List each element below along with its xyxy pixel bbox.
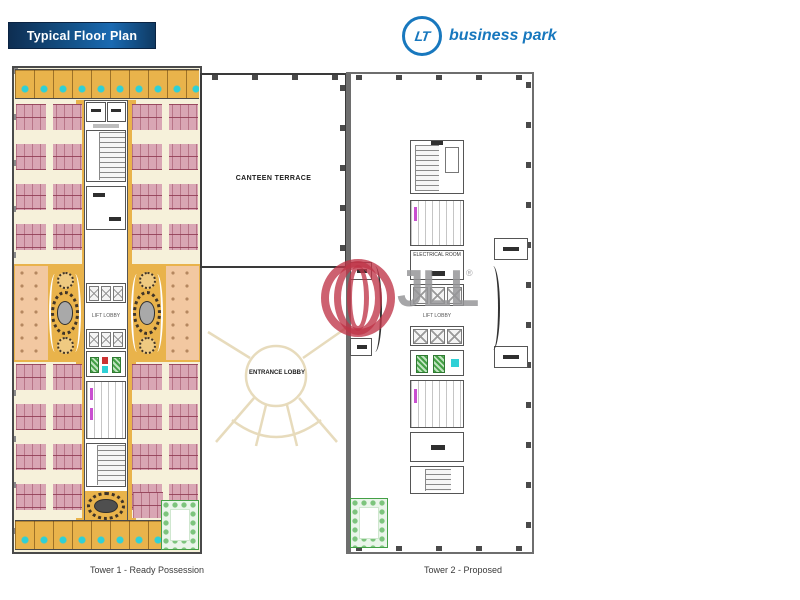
tower1-core: LIFT LOBBY: [84, 100, 128, 522]
registered-mark: ®: [466, 268, 473, 278]
stairs-icon: [415, 145, 439, 191]
lt-logo-icon: LT: [402, 16, 442, 56]
meeting-room: [86, 102, 106, 122]
brand-logo: LT business park: [402, 18, 557, 54]
canteen-label: CANTEEN TERRACE: [202, 175, 345, 182]
entrance-lobby-diagram: [204, 324, 356, 474]
pantry-counter-icon: [102, 366, 108, 373]
canteen-columns-right: [340, 85, 345, 260]
lift-shaft-icon: [430, 329, 445, 344]
equipment-icon: [503, 247, 519, 251]
washroom-fixture-icon: [90, 408, 93, 420]
tower1-caption: Tower 1 - Ready Possession: [90, 565, 204, 575]
table-icon: [91, 109, 101, 112]
equipment-icon: [93, 193, 105, 197]
title-banner: Typical Floor Plan: [8, 22, 156, 49]
stairs-icon: [99, 132, 125, 180]
tower2-entry-booth-right: [494, 346, 528, 368]
lift-shaft-icon: [113, 286, 123, 301]
tower1-workstations-lower-left: [16, 364, 82, 518]
terrace-inner: [359, 507, 379, 539]
tower2-staircase-upper: [410, 140, 464, 194]
pantry-seating-icon: [90, 357, 99, 373]
tower1-workstations-upper-right: [132, 104, 198, 264]
lens-arc-icon: [49, 274, 61, 352]
page-title: Typical Floor Plan: [27, 29, 137, 43]
lift-shaft-icon: [89, 332, 99, 347]
washroom-fixture-icon: [414, 207, 417, 221]
canteen-columns-top: [212, 75, 339, 80]
oval-table-icon: [94, 499, 118, 514]
tower1-boardroom-left: [48, 268, 82, 358]
tower2-service-room: [410, 432, 464, 462]
tower2-entry-booth-left: [350, 338, 372, 356]
terrace-inner: [170, 509, 190, 541]
pantry-counter-icon: [102, 357, 108, 364]
lift-shaft-icon: [101, 332, 111, 347]
stairs-icon: [425, 469, 451, 491]
globe-ring-icon: [347, 265, 369, 331]
tower2-garden-terrace: [350, 498, 388, 548]
tower2-washrooms-lower: [410, 380, 464, 428]
service-room: [445, 147, 459, 173]
equipment-icon: [431, 445, 445, 450]
lens-arc-icon: [131, 274, 143, 352]
tower1-pantry: [86, 351, 126, 377]
conference-table: [87, 492, 125, 520]
pantry-counter-icon: [451, 359, 459, 367]
core-label-bar: [93, 124, 119, 128]
tower2-caption: Tower 2 - Proposed: [424, 565, 502, 575]
tower1-open-area-left: [15, 266, 48, 360]
lt-monogram: LT: [414, 28, 430, 44]
lens-arc-icon: [69, 274, 81, 352]
tower1-conference-room: [85, 491, 127, 521]
tower1-washrooms: [86, 381, 126, 439]
lift-shaft-icon: [101, 286, 111, 301]
tower2-columns-right: [526, 82, 531, 542]
washroom-fixture-icon: [414, 389, 417, 403]
tower1-workstations-small: [133, 492, 163, 518]
tower1-workstations-upper-left: [16, 104, 82, 264]
lens-arc-icon: [151, 274, 163, 352]
tower1-meeting-rooms: [86, 102, 126, 122]
tower2-entry-booth-right: [494, 238, 528, 260]
tower2-staircase-lower: [410, 466, 464, 494]
lift-shaft-icon: [113, 332, 123, 347]
tower2-washrooms-upper: [410, 200, 464, 246]
tower2-lift-bank-lower: [410, 326, 464, 346]
tower1-garden-terrace: [161, 500, 199, 550]
pantry-seating-icon: [416, 355, 428, 373]
tower1-boardroom-right: [130, 268, 164, 358]
tower1-lift-bank-upper: [86, 283, 126, 303]
brand-name: business park: [449, 27, 557, 45]
washroom-fixture-icon: [90, 388, 93, 400]
meeting-room: [107, 102, 127, 122]
stairs-icon: [97, 445, 125, 485]
canteen-terrace: CANTEEN TERRACE: [200, 73, 347, 268]
tower2-pantry: [410, 350, 464, 376]
equipment-icon: [431, 141, 443, 145]
tower1-ahu-room: [86, 186, 126, 230]
jll-globe-icon: [321, 259, 395, 337]
lift-shaft-icon: [89, 286, 99, 301]
tower2-columns-top: [356, 75, 522, 80]
entrance-paving-lines: [208, 328, 346, 446]
entrance-lobby-label: ENTRANCE LOBBY: [238, 370, 316, 376]
tower2-canopy-arc-right: [486, 266, 500, 350]
pantry-seating-icon: [112, 357, 121, 373]
tower1-lift-bank-lower: [86, 329, 126, 349]
lift-shaft-icon: [447, 329, 462, 344]
electrical-room-label: ELECTRICAL ROOM: [411, 251, 463, 259]
tower1-staircase: [86, 130, 126, 182]
tower1-staircase-lower: [86, 443, 126, 487]
equipment-icon: [503, 355, 519, 359]
pantry-seating-icon: [433, 355, 445, 373]
tower1-lift-lobby-label: LIFT LOBBY: [86, 305, 126, 327]
equipment-icon: [357, 345, 367, 349]
lift-shaft-icon: [413, 329, 428, 344]
table-icon: [111, 109, 121, 112]
tower1-top-cabins: [15, 69, 199, 99]
tower1-open-area-right: [166, 266, 199, 360]
floor-plan-page: Typical Floor Plan LT business park: [0, 0, 800, 600]
equipment-icon: [109, 217, 121, 221]
tower1-floorplan: LIFT LOBBY: [12, 66, 202, 554]
